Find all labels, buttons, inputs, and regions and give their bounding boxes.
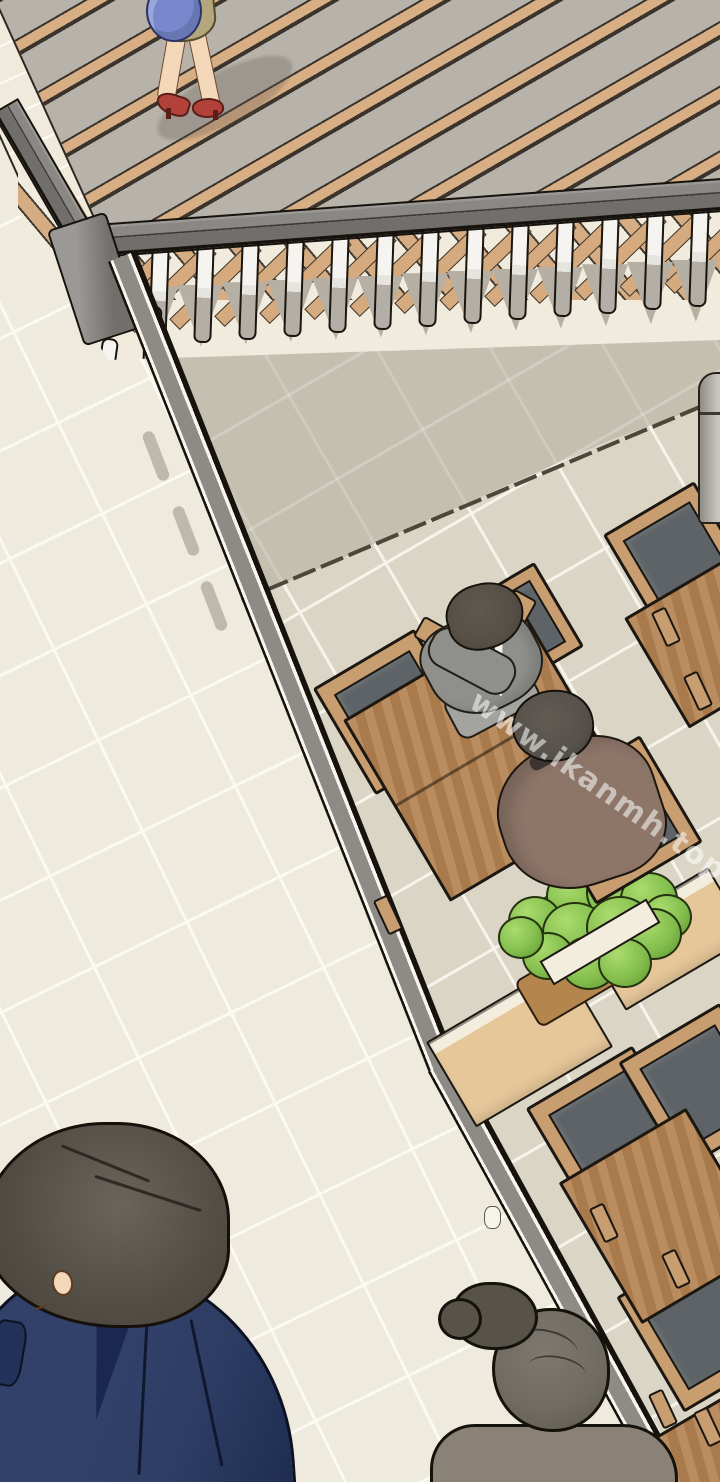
shoe-heel <box>166 108 171 119</box>
railing-baluster <box>283 236 304 337</box>
hair-bun-lobe <box>438 1298 482 1340</box>
railing-baluster <box>418 226 439 327</box>
cylinder-body <box>698 372 720 524</box>
railing-baluster <box>508 220 529 321</box>
bush-leaf <box>498 916 544 959</box>
railing-baluster <box>598 213 619 314</box>
cylinder-seam <box>700 412 720 415</box>
railing-baluster <box>688 207 709 308</box>
railing-baluster <box>643 210 664 311</box>
comic-panel: www.ikanmh.top <box>0 0 720 1482</box>
railing-baluster <box>373 230 394 331</box>
railing-baluster <box>328 233 349 334</box>
railing-baluster <box>238 240 259 341</box>
hair <box>0 1122 230 1328</box>
cup-on-wall <box>484 1206 501 1229</box>
railing-baluster <box>193 243 214 344</box>
shoulders <box>430 1424 678 1482</box>
railing-baluster <box>553 217 574 318</box>
shoe-heel <box>213 110 218 120</box>
railing-baluster <box>463 223 484 324</box>
